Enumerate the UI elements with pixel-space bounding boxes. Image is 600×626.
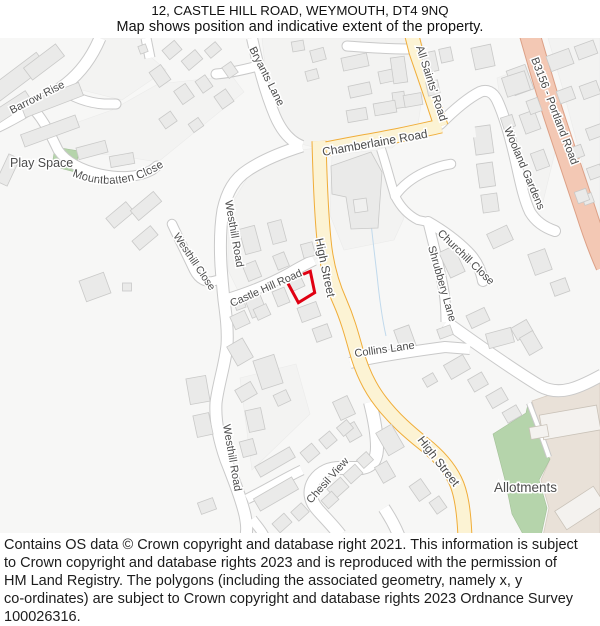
svg-text:Allotments: Allotments: [494, 480, 557, 495]
svg-text:Play Space: Play Space: [10, 156, 73, 170]
